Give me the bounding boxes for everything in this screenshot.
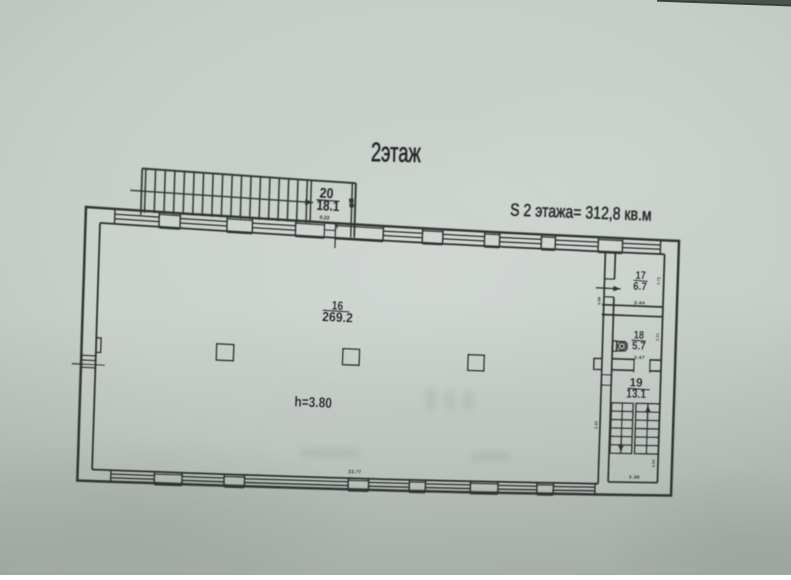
svg-text:4.34: 4.34 [651, 459, 656, 468]
svg-text:23.77: 23.77 [348, 469, 361, 475]
svg-text:18.1: 18.1 [316, 198, 340, 215]
svg-text:2этаж: 2этаж [371, 137, 422, 168]
svg-text:6.7: 6.7 [633, 281, 647, 294]
svg-text:0.22: 0.22 [319, 215, 330, 222]
svg-text:5.7: 5.7 [632, 340, 646, 352]
svg-text:h=3.80: h=3.80 [294, 394, 332, 411]
svg-text:2.31: 2.31 [655, 332, 660, 341]
svg-text:3.44: 3.44 [634, 300, 646, 305]
svg-text:13.1: 13.1 [626, 387, 647, 402]
svg-text:4.58: 4.58 [596, 296, 601, 305]
svg-text:3.47: 3.47 [634, 355, 646, 360]
svg-text:3.72: 3.72 [656, 276, 661, 285]
svg-text:3.43: 3.43 [593, 420, 598, 429]
svg-text:3.38: 3.38 [628, 475, 640, 480]
svg-text:269.2: 269.2 [322, 309, 353, 325]
